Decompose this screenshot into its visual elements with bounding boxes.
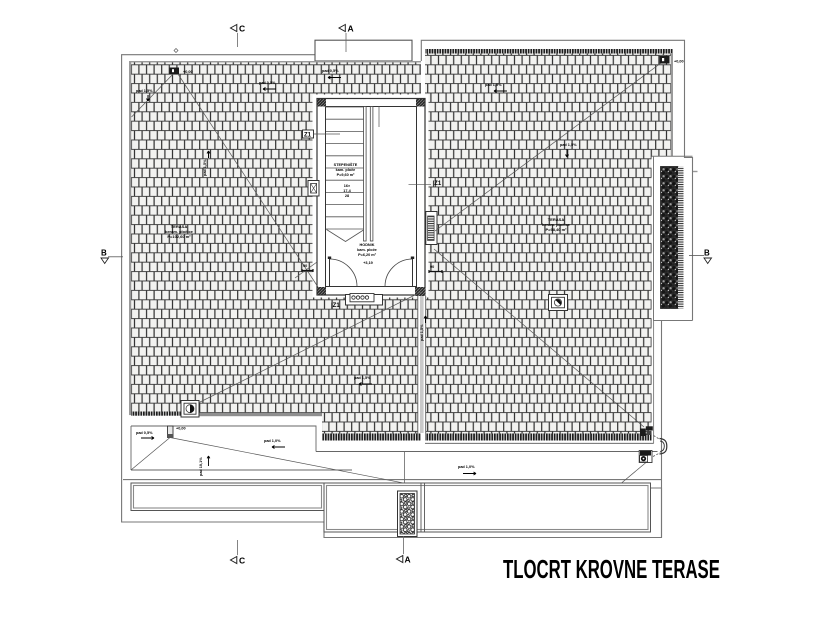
- svg-text:P=6,20 m²: P=6,20 m²: [358, 253, 377, 257]
- svg-text:HODNIK: HODNIK: [360, 243, 375, 247]
- svg-text:C: C: [239, 556, 245, 566]
- svg-text:pad 1,5%: pad 1,5%: [420, 324, 424, 341]
- svg-text:Z1: Z1: [304, 133, 312, 139]
- svg-text:STEPENIŠTE: STEPENIŠTE: [334, 162, 358, 167]
- svg-text:pad 1,5%: pad 1,5%: [354, 376, 371, 380]
- svg-text:+0,00: +0,00: [674, 60, 684, 64]
- svg-text:B: B: [704, 249, 710, 258]
- svg-text:kam. ploče: kam. ploče: [336, 168, 356, 172]
- svg-text:90: 90: [430, 265, 434, 269]
- svg-text:28: 28: [345, 194, 349, 198]
- svg-text:P=102,60 m²: P=102,60 m²: [167, 234, 191, 239]
- svg-text:+0,00: +0,00: [176, 427, 186, 431]
- svg-text:pad 1,5%: pad 1,5%: [560, 143, 577, 147]
- svg-text:A: A: [348, 24, 354, 34]
- svg-text:pad 0,5%: pad 0,5%: [136, 431, 153, 435]
- svg-text:pad 1,5%: pad 1,5%: [485, 83, 502, 87]
- svg-text:pad 1,0%: pad 1,0%: [264, 439, 281, 443]
- svg-text:C: C: [239, 24, 245, 34]
- svg-text:17,4: 17,4: [343, 189, 351, 193]
- svg-text:B: B: [101, 249, 107, 258]
- svg-text:pad 0,5%: pad 0,5%: [322, 69, 339, 73]
- svg-text:pad 10,1%: pad 10,1%: [199, 457, 203, 476]
- svg-text:pad 1,0%: pad 1,0%: [458, 465, 475, 469]
- svg-text:P=9,60 m²: P=9,60 m²: [337, 173, 356, 177]
- svg-text:16×: 16×: [344, 184, 351, 188]
- svg-text:pad 0,5%: pad 0,5%: [259, 81, 276, 85]
- svg-text:pad 1,5%: pad 1,5%: [136, 89, 153, 93]
- svg-text:|Z1: |Z1: [433, 181, 442, 187]
- svg-text:P=98,40 m²: P=98,40 m²: [545, 227, 567, 232]
- svg-text:+0,00: +0,00: [183, 70, 193, 74]
- svg-text:90: 90: [303, 264, 307, 268]
- svg-text:A: A: [405, 555, 411, 565]
- svg-text:|Z1: |Z1: [331, 303, 340, 309]
- svg-text:+3,19: +3,19: [363, 261, 373, 265]
- svg-text:TLOCRT KROVNE TERASE: TLOCRT KROVNE TERASE: [503, 554, 720, 584]
- svg-text:kam. ploče: kam. ploče: [357, 248, 377, 252]
- svg-text:pad 1,5%: pad 1,5%: [203, 159, 207, 176]
